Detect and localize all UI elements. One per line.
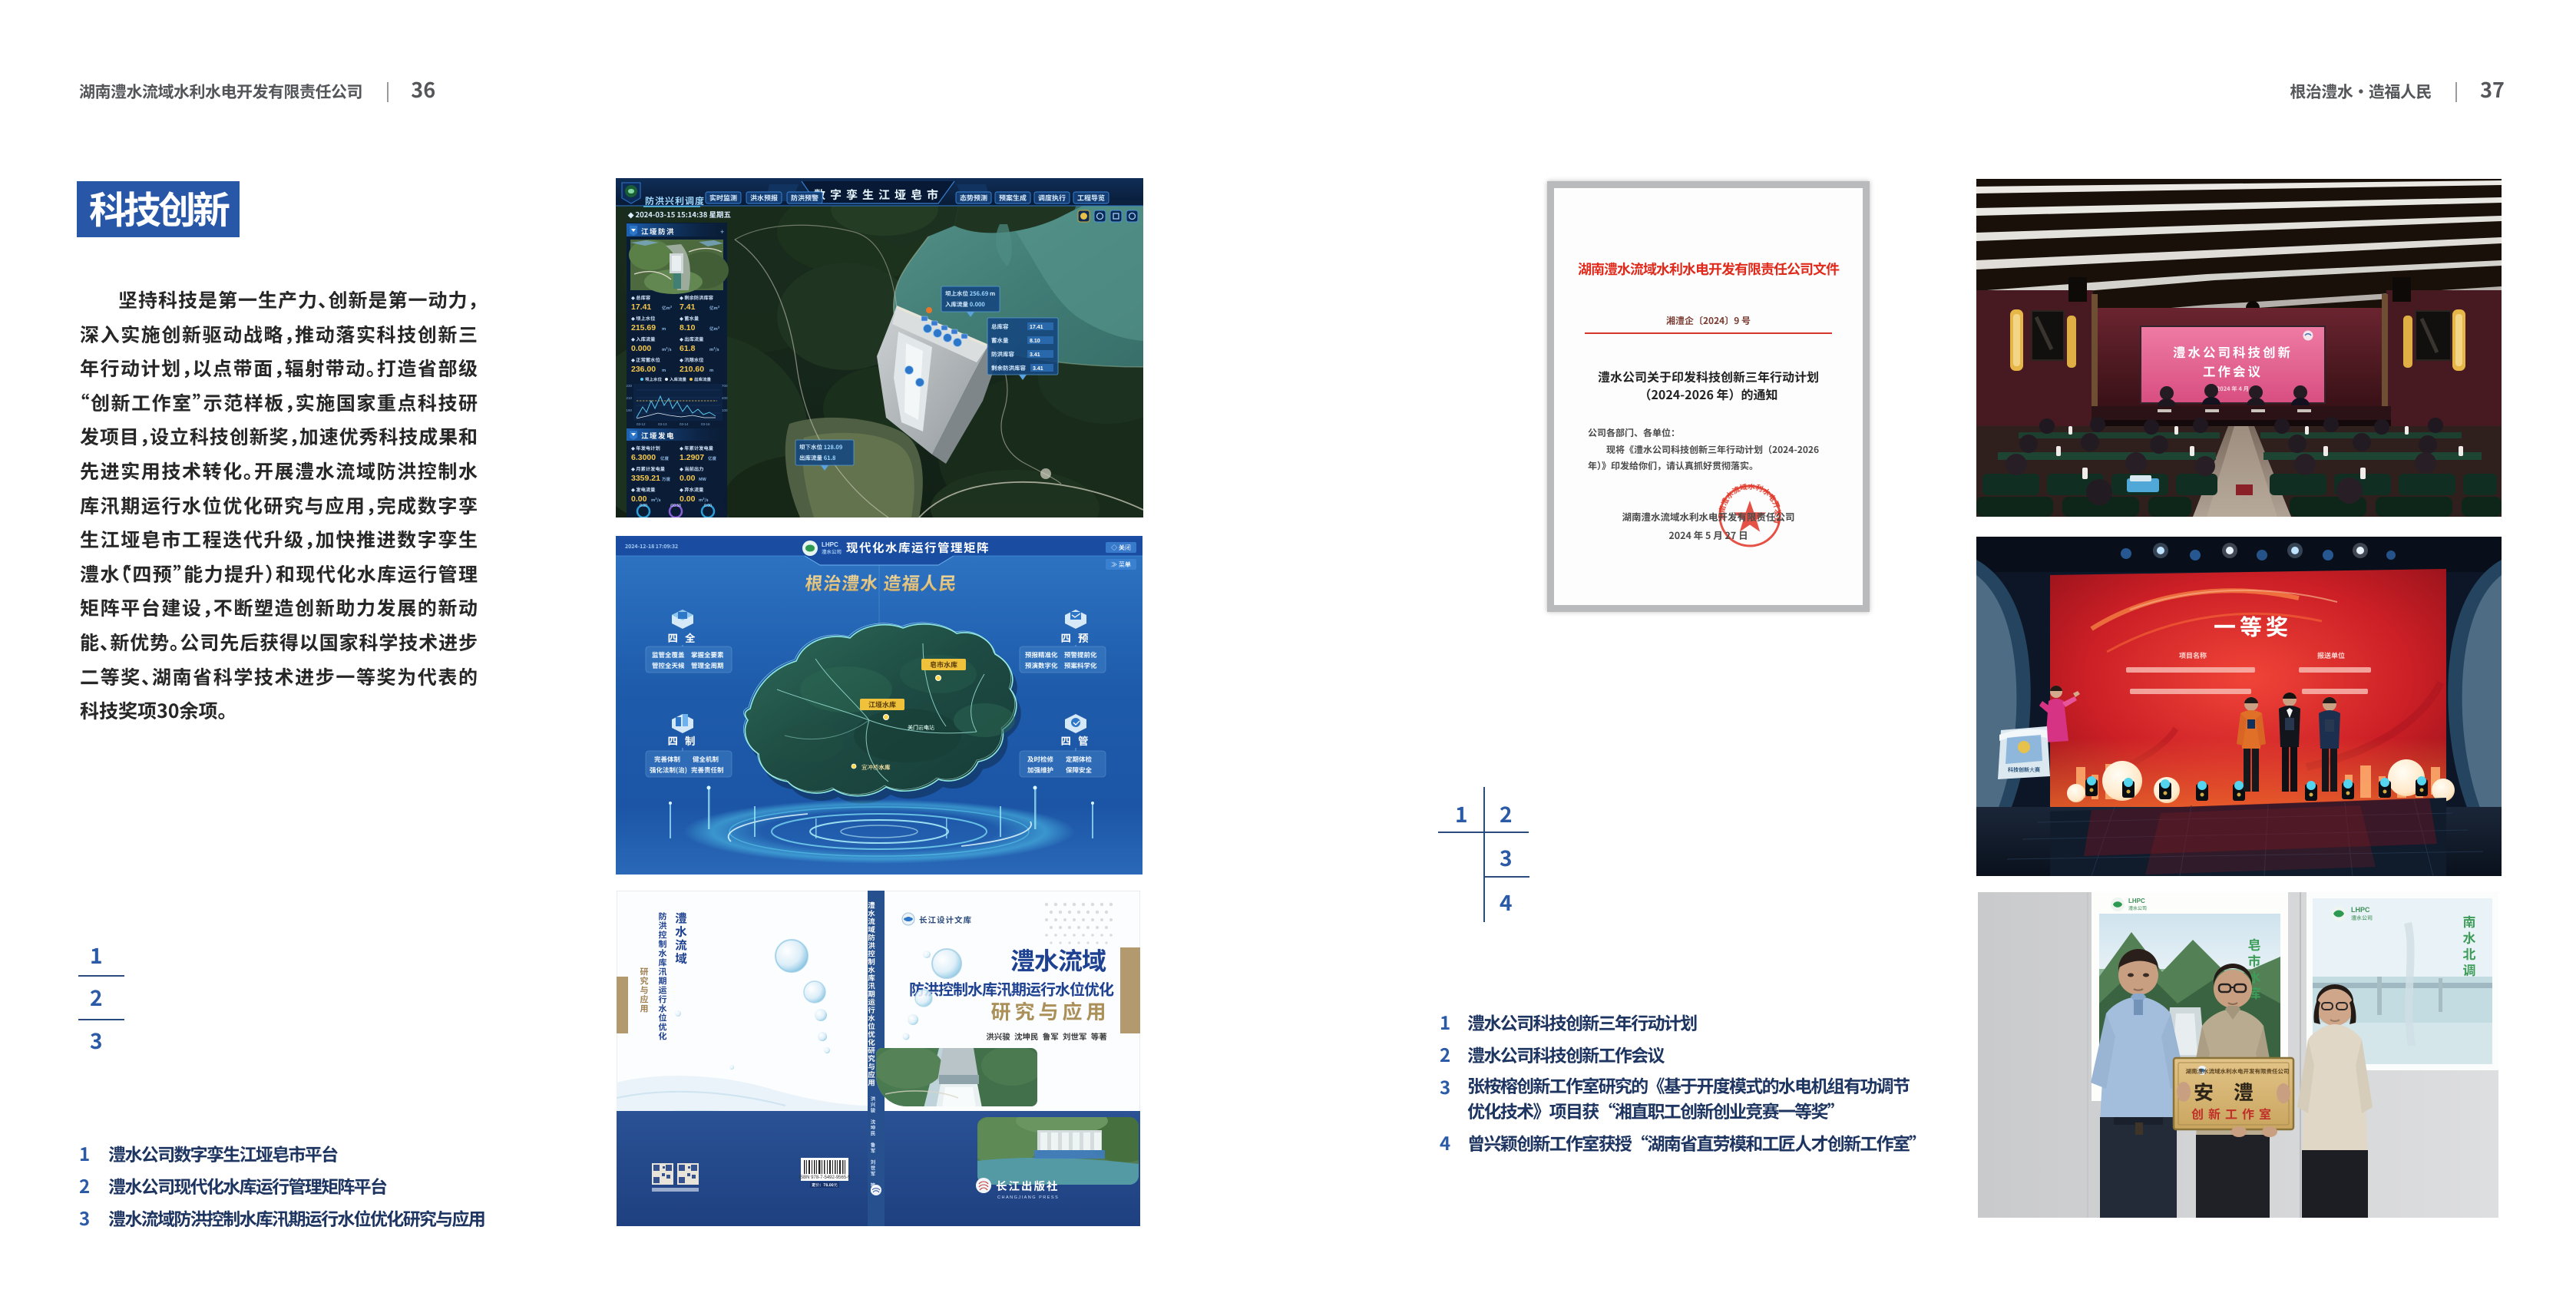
svg-text:澧水流域: 澧水流域 (673, 912, 689, 966)
svg-text:◆ 蓄水量: ◆ 蓄水量 (680, 315, 699, 322)
svg-text:洪兴骏 沈坤民 鲁军 刘世军 等著: 洪兴骏 沈坤民 鲁军 刘世军 等著 (869, 1096, 877, 1195)
svg-text:3359.21: 3359.21 (631, 474, 660, 483)
svg-text:坝上水位: 坝上水位 (645, 376, 663, 382)
svg-text:报送单位: 报送单位 (2317, 650, 2345, 660)
svg-text:03-12: 03-12 (637, 422, 646, 426)
svg-text:研究与应用: 研究与应用 (638, 967, 650, 1013)
svg-text:预案生成: 预案生成 (999, 193, 1027, 203)
svg-text:一等奖: 一等奖 (2214, 610, 2292, 642)
svg-text:230: 230 (626, 384, 632, 388)
svg-text:强化法制(治): 强化法制(治) (650, 765, 687, 775)
svg-text:防洪库容: 防洪库容 (991, 350, 1014, 359)
svg-text:1.2907: 1.2907 (680, 453, 704, 462)
svg-text:6.3000: 6.3000 (631, 453, 656, 462)
svg-text:◆ 总库容: ◆ 总库容 (631, 294, 651, 301)
svg-text:03-14: 03-14 (680, 422, 689, 426)
svg-text:亿度: 亿度 (708, 455, 717, 461)
svg-text:0.00: 0.00 (631, 494, 647, 504)
svg-text:210: 210 (626, 396, 632, 400)
svg-text:≫ 菜单: ≫ 菜单 (1111, 560, 1131, 569)
svg-text:总库容: 总库容 (991, 322, 1009, 331)
svg-text:项目名称: 项目名称 (2179, 650, 2207, 660)
svg-text:215.69: 215.69 (631, 323, 656, 332)
svg-text:四 全: 四 全 (667, 630, 697, 645)
svg-text:◆ 弃水流量: ◆ 弃水流量 (680, 486, 704, 493)
svg-text:190: 190 (626, 408, 632, 412)
svg-text:管理全周期: 管理全周期 (691, 661, 724, 670)
svg-text:坝上水位 256.69 m: 坝上水位 256.69 m (945, 289, 995, 298)
svg-text:监管全覆盖: 监管全覆盖 (652, 650, 685, 660)
svg-text:◆ 坝上水位: ◆ 坝上水位 (631, 315, 656, 322)
svg-text:四 预: 四 预 (1060, 630, 1090, 645)
svg-text:四 制: 四 制 (667, 732, 697, 748)
svg-text:m: m (662, 367, 666, 373)
svg-text:皂市水库: 皂市水库 (930, 660, 957, 670)
svg-text:现代化水库运行管理矩阵: 现代化水库运行管理矩阵 (846, 539, 990, 556)
svg-text:江垭防洪: 江垭防洪 (641, 226, 675, 236)
svg-text:8.10: 8.10 (680, 323, 696, 332)
svg-text:m: m (709, 367, 713, 373)
svg-text:3.41: 3.41 (1033, 366, 1043, 372)
svg-text:态势预测: 态势预测 (960, 193, 987, 203)
svg-text:◆ 当前出力: ◆ 当前出力 (680, 465, 703, 472)
svg-text:入库流量 0.000: 入库流量 0.000 (945, 300, 985, 309)
svg-text:400: 400 (722, 396, 728, 400)
svg-text:100: 100 (722, 408, 728, 412)
svg-text:加强维护: 加强维护 (1027, 765, 1053, 775)
svg-text:◆ 剩余防洪库容: ◆ 剩余防洪库容 (680, 294, 714, 301)
svg-text:3.41: 3.41 (1030, 352, 1040, 358)
svg-text:m³/s: m³/s (699, 497, 709, 503)
svg-text:700: 700 (722, 384, 728, 388)
svg-text:236.00: 236.00 (631, 365, 656, 374)
svg-text:预报精准化: 预报精准化 (1025, 650, 1058, 660)
svg-text:◆ 出库流量: ◆ 出库流量 (680, 336, 704, 342)
svg-text:完善体制: 完善体制 (654, 755, 680, 764)
svg-text:预案科学化: 预案科学化 (1064, 661, 1097, 670)
svg-text:工程导览: 工程导览 (1077, 193, 1105, 203)
svg-text:61.8: 61.8 (680, 344, 696, 353)
svg-text:安澧: 安澧 (2194, 1077, 2273, 1106)
svg-text:8.10: 8.10 (1030, 339, 1040, 344)
svg-text:澧水流域防洪控制水库汛期运行水位优化研究与应用: 澧水流域防洪控制水库汛期运行水位优化研究与应用 (866, 901, 877, 1086)
svg-text:◆ 入库流量: ◆ 入库流量 (631, 336, 656, 342)
svg-text:蓄水量: 蓄水量 (991, 336, 1009, 345)
svg-text:/00.58: /00.58 (670, 504, 681, 508)
svg-text:0.000: 0.000 (631, 344, 651, 353)
svg-text:ISBN 978-7-5492-9565-9: ISBN 978-7-5492-9565-9 (799, 1175, 851, 1180)
svg-text:◆ 正常蓄水位: ◆ 正常蓄水位 (631, 356, 660, 363)
svg-text:出库流量: 出库流量 (694, 376, 712, 382)
svg-text:亿m³: 亿m³ (709, 326, 720, 332)
svg-text:调度执行: 调度执行 (1038, 193, 1066, 203)
svg-text:◆ 年累计发电量: ◆ 年累计发电量 (680, 445, 714, 451)
svg-text:亿m³: 亿m³ (709, 305, 720, 311)
svg-text:m³/s: m³/s (651, 497, 661, 503)
svg-text:◇ 关闭: ◇ 关闭 (1111, 544, 1131, 552)
svg-text:实时监测: 实时监测 (709, 193, 737, 203)
svg-text:CHANGJIANG PRESS: CHANGJIANG PRESS (997, 1195, 1059, 1200)
svg-text:m: m (662, 326, 666, 332)
svg-text:亿m³: 亿m³ (662, 305, 673, 311)
svg-text:保障安全: 保障安全 (1066, 765, 1093, 775)
svg-text:及时检修: 及时检修 (1027, 755, 1054, 764)
svg-text:完善责任制: 完善责任制 (691, 765, 724, 775)
svg-text:洪水预报: 洪水预报 (750, 193, 778, 203)
svg-text:工作会议: 工作会议 (2203, 362, 2263, 380)
svg-text:预警提前化: 预警提前化 (1064, 650, 1097, 660)
svg-text:03-13: 03-13 (658, 422, 667, 426)
svg-text:江垭水库: 江垭水库 (868, 699, 896, 709)
svg-text:7.41: 7.41 (680, 303, 696, 312)
svg-text:防洪控制水库汛期运行水位优化: 防洪控制水库汛期运行水位优化 (656, 912, 669, 1041)
svg-text:+: + (720, 226, 724, 236)
svg-text:0.00: 0.00 (680, 494, 696, 504)
svg-text:江垭发电: 江垭发电 (641, 430, 675, 441)
svg-text:2024 年 4 月: 2024 年 4 月 (2217, 385, 2249, 393)
svg-text:◆ 月累计发电量: ◆ 月累计发电量 (631, 465, 666, 472)
svg-text:03-16: 03-16 (701, 422, 710, 426)
svg-text:剩余防洪库容: 剩余防洪库容 (991, 364, 1026, 372)
svg-text:◆ 年发电计划: ◆ 年发电计划 (631, 445, 660, 451)
svg-text:长江设计文库: 长江设计文库 (919, 914, 972, 926)
svg-text:澧水公司科技创新: 澧水公司科技创新 (2173, 342, 2293, 361)
svg-text:m³/s: m³/s (709, 346, 719, 352)
svg-text:防洪兴利调度: 防洪兴利调度 (645, 194, 705, 207)
svg-text:南水北调: 南水北调 (2460, 915, 2479, 980)
svg-text:m³/s: m³/s (662, 346, 672, 352)
svg-text:0.00: 0.00 (704, 504, 712, 508)
svg-text:亿度: 亿度 (660, 455, 670, 461)
svg-text:根治澧水 造福人民: 根治澧水 造福人民 (804, 569, 959, 595)
svg-text:湖南澧水流域水利水电开发有限责任公司: 湖南澧水流域水利水电开发有限责任公司 (2186, 1067, 2290, 1076)
svg-text:入库流量: 入库流量 (670, 376, 687, 382)
svg-text:宜冲桥水库: 宜冲桥水库 (861, 763, 891, 772)
svg-text:洪兴骏 沈坤民 鲁军 刘世军 等著: 洪兴骏 沈坤民 鲁军 刘世军 等著 (986, 1031, 1107, 1043)
svg-text:万度: 万度 (662, 476, 671, 482)
svg-text:数字孪生江垭皂市: 数字孪生江垭皂市 (814, 187, 943, 203)
svg-text:◆ 发电流量: ◆ 发电流量 (631, 486, 656, 493)
svg-text:17.41: 17.41 (1030, 325, 1043, 330)
svg-text:关门岩电站: 关门岩电站 (908, 724, 934, 732)
svg-text:0.00: 0.00 (680, 474, 696, 483)
svg-text:长江出版社: 长江出版社 (996, 1178, 1060, 1194)
svg-text:管控全天候: 管控全天候 (652, 661, 685, 670)
svg-text:科技创新大赛: 科技创新大赛 (2008, 766, 2040, 774)
svg-text:坝下水位 128.09: 坝下水位 128.09 (799, 443, 843, 451)
svg-text:预演数字化: 预演数字化 (1025, 661, 1058, 670)
svg-text:四 管: 四 管 (1060, 732, 1090, 748)
svg-text:研究与应用: 研究与应用 (990, 997, 1109, 1025)
svg-text:健全机制: 健全机制 (693, 755, 719, 764)
svg-text:定价：78.00元: 定价：78.00元 (812, 1182, 837, 1188)
svg-text:澧水流域: 澧水流域 (1010, 942, 1106, 977)
svg-text:澧水公司: 澧水公司 (822, 547, 842, 555)
svg-text:210.60: 210.60 (680, 365, 704, 374)
svg-text:掌握全要素: 掌握全要素 (691, 650, 724, 660)
svg-text:LHPC: LHPC (2351, 904, 2370, 914)
svg-text:定期体检: 定期体检 (1066, 755, 1093, 764)
svg-text:防洪预警: 防洪预警 (791, 193, 818, 203)
svg-text:出库流量 61.8: 出库流量 61.8 (799, 454, 836, 462)
svg-text:◆ 2024-03-15 15:14:38 星期五: ◆ 2024-03-15 15:14:38 星期五 (627, 209, 731, 220)
svg-text:澧水公司: 澧水公司 (2351, 914, 2373, 922)
svg-text:MW: MW (699, 476, 706, 482)
svg-text:2024-12-18 17:09:32: 2024-12-18 17:09:32 (625, 543, 678, 551)
svg-text:0.00: 0.00 (640, 504, 647, 508)
svg-text:◆ 汛限水位: ◆ 汛限水位 (680, 356, 704, 363)
svg-text:澧水公司: 澧水公司 (2128, 904, 2147, 911)
svg-text:创新工作室: 创新工作室 (2191, 1104, 2276, 1122)
svg-text:17.41: 17.41 (631, 303, 651, 312)
